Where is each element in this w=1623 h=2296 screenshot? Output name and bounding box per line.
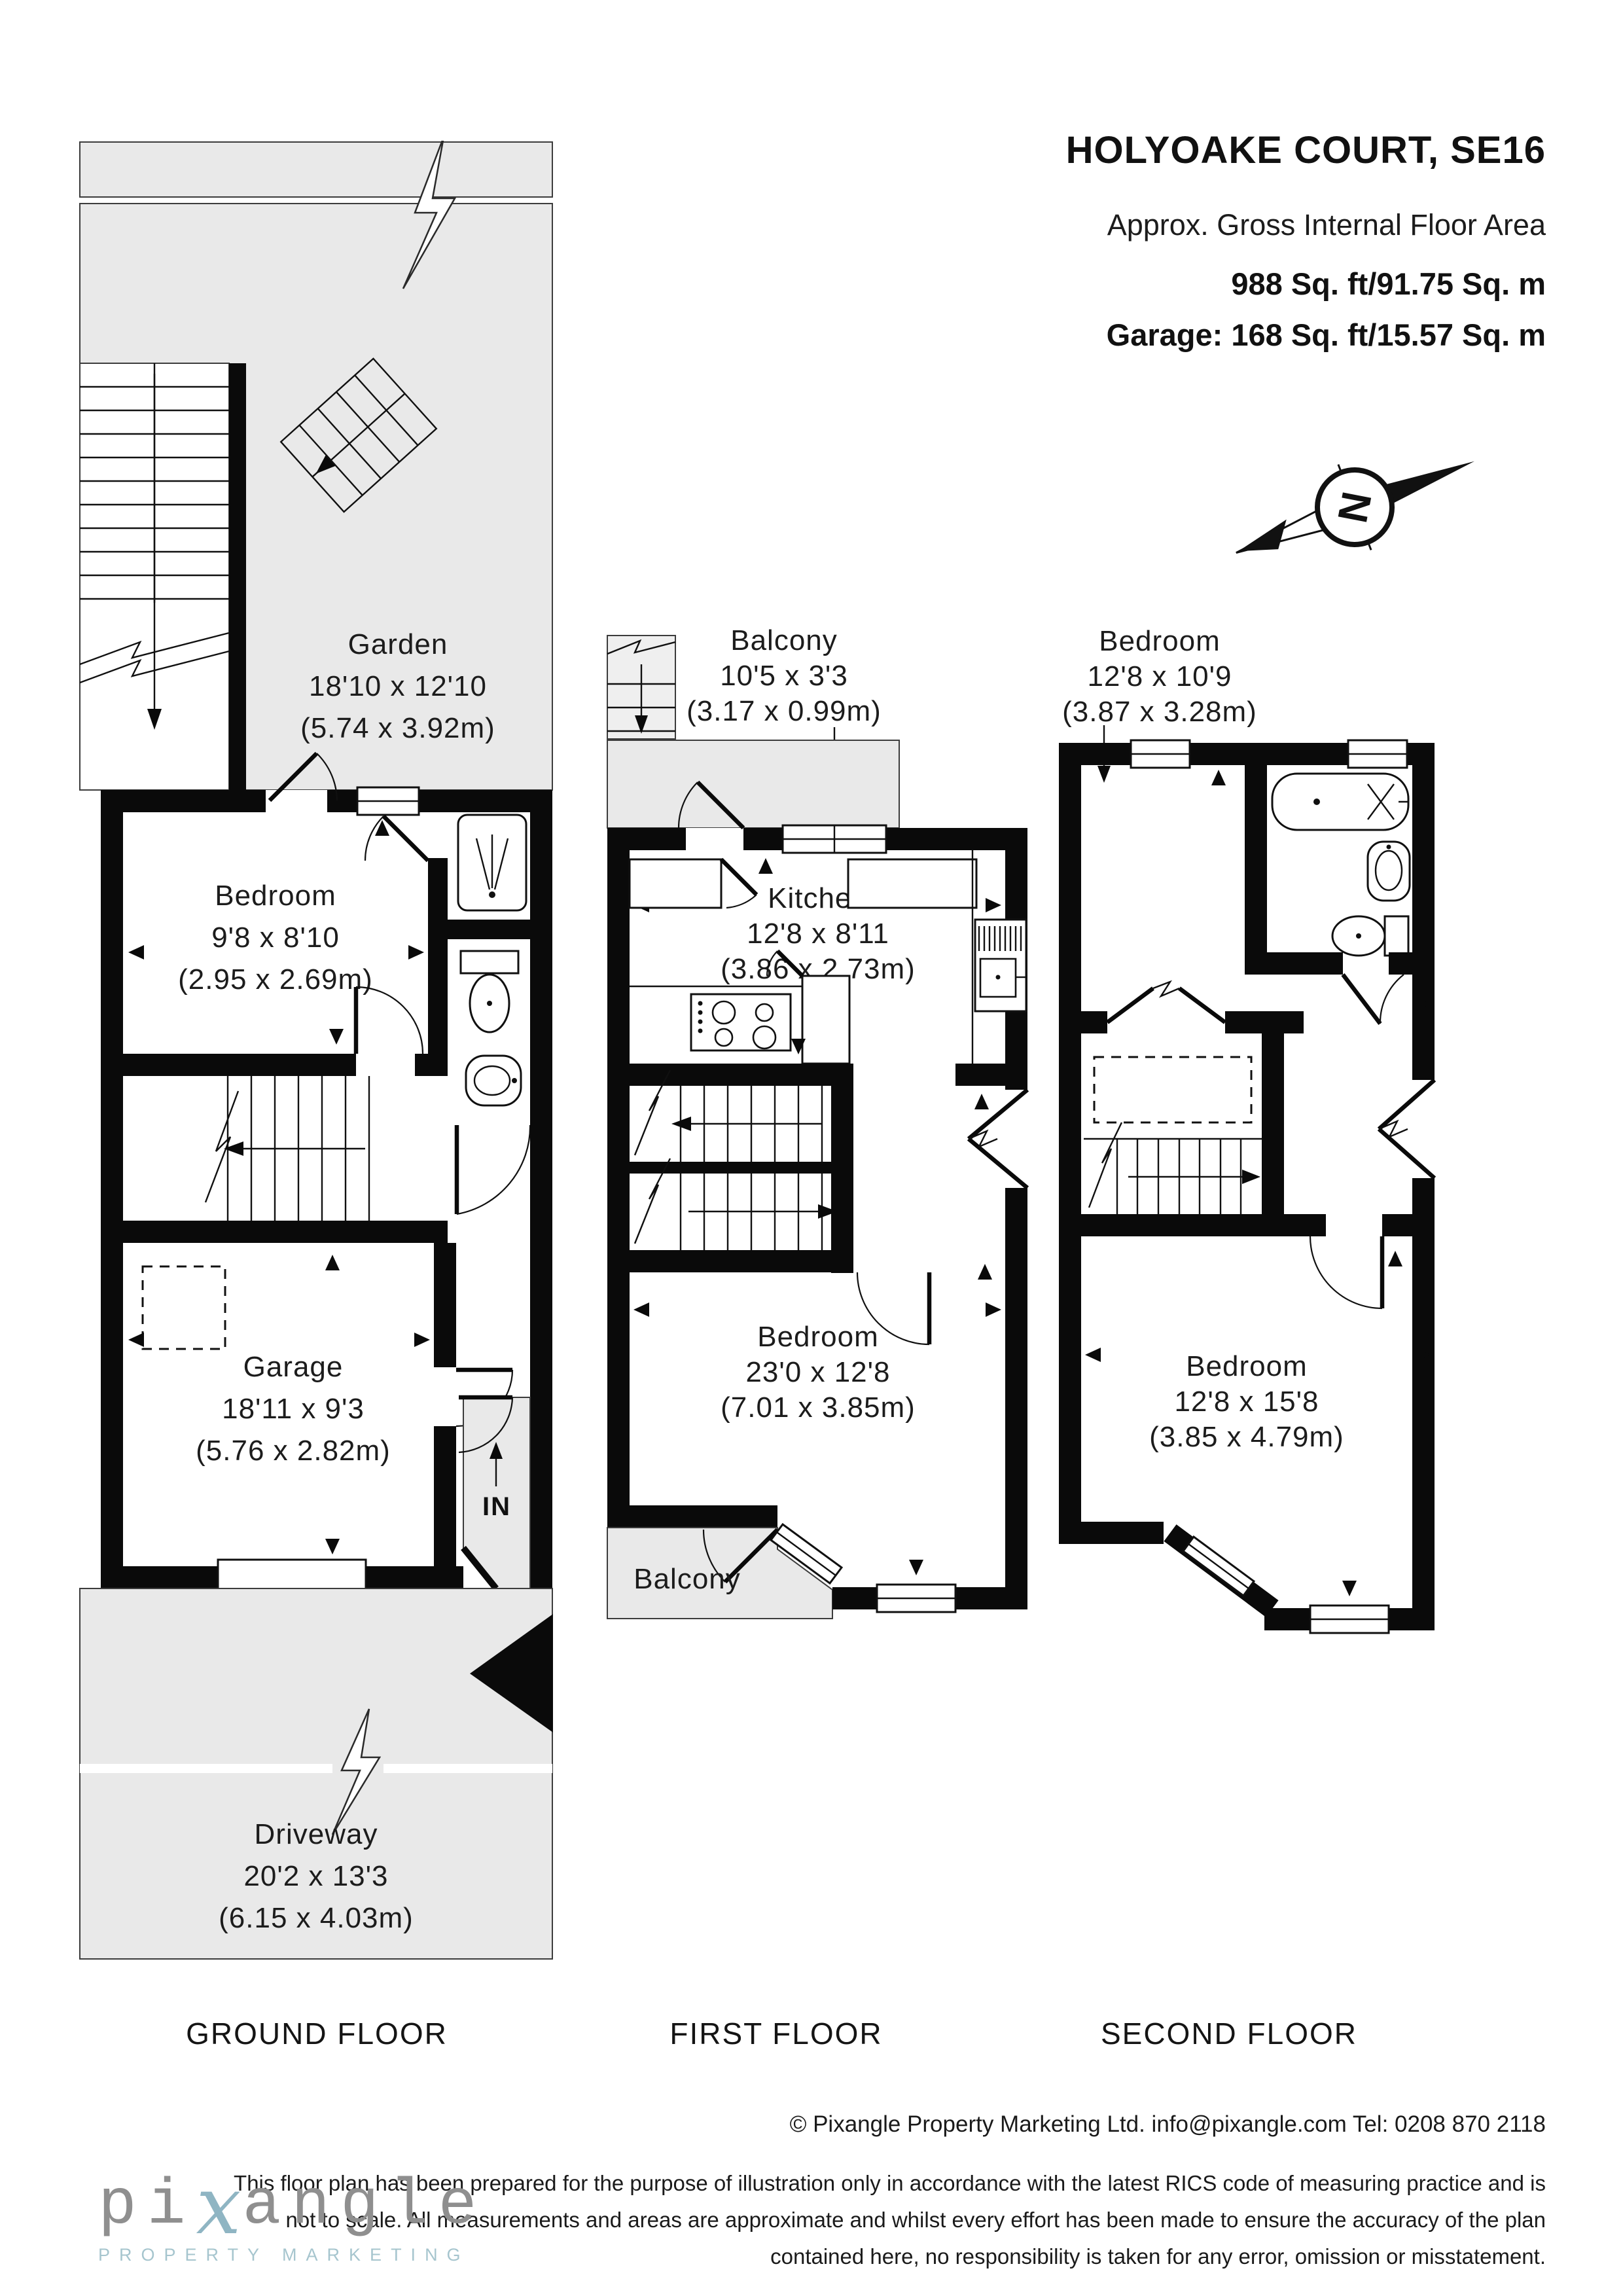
second-bedroom-top-label: Bedroom 12'8 x 10'9 (3.87 x 3.28m) xyxy=(1062,625,1257,728)
door-gap xyxy=(686,828,743,850)
kitchen-peninsula xyxy=(802,976,849,1064)
garden-name: Garden xyxy=(348,628,448,660)
second-floor-caption: SECOND FLOOR xyxy=(1101,2016,1357,2051)
svg-text:(3.17 x 0.99m): (3.17 x 0.99m) xyxy=(687,695,882,727)
wall xyxy=(955,1064,1027,1086)
wall xyxy=(1245,765,1267,952)
arrow-marker xyxy=(758,858,773,874)
page-title: HOLYOAKE COURT, SE16 xyxy=(1066,128,1546,172)
wall xyxy=(1059,1011,1107,1033)
void-dashed xyxy=(1094,1057,1251,1122)
arrow-marker xyxy=(986,898,1001,912)
arrow-marker xyxy=(986,1302,1001,1317)
arrow-marker xyxy=(325,1255,340,1270)
wall xyxy=(607,828,630,1535)
wall xyxy=(101,1221,448,1243)
svg-text:10'5 x 3'3: 10'5 x 3'3 xyxy=(720,660,848,692)
compass-needle-tip xyxy=(1383,452,1478,505)
balcony-staircase xyxy=(607,636,675,739)
logo-tagline: PROPERTY MARKETING xyxy=(98,2245,488,2265)
wall xyxy=(1059,1522,1164,1544)
wall xyxy=(415,1054,448,1076)
svg-text:(7.01 x 3.85m): (7.01 x 3.85m) xyxy=(721,1391,916,1424)
svg-text:20'2 x 13'3: 20'2 x 13'3 xyxy=(243,1860,388,1892)
toilet-icon xyxy=(1332,916,1408,956)
svg-text:(3.85 x 4.79m): (3.85 x 4.79m) xyxy=(1149,1421,1344,1453)
wall xyxy=(831,1064,853,1273)
arrow-marker xyxy=(408,945,424,960)
entrance-in-label: IN xyxy=(482,1492,511,1521)
wall xyxy=(530,790,552,1588)
ground-floor-plan: Garden 18'10 x 12'10 (5.74 x 3.92m) Bedr… xyxy=(77,141,562,1967)
arrow-marker xyxy=(128,945,144,960)
svg-text:23'0 x 12'8: 23'0 x 12'8 xyxy=(745,1356,890,1388)
arrow-marker xyxy=(909,1560,923,1575)
svg-text:(3.87 x 3.28m): (3.87 x 3.28m) xyxy=(1062,696,1257,728)
wall xyxy=(1245,952,1343,975)
wall xyxy=(1412,743,1435,1630)
arrow-marker xyxy=(1388,1251,1402,1266)
door-arc xyxy=(457,1125,530,1214)
wall xyxy=(1262,1033,1284,1214)
svg-text:Garage: Garage xyxy=(243,1351,344,1383)
wall xyxy=(434,1243,456,1367)
shower-room-door xyxy=(383,816,428,861)
garage-storage-dashed xyxy=(143,1266,225,1349)
wardrobe-doors xyxy=(1107,982,1225,1022)
ground-floor-caption: GROUND FLOOR xyxy=(186,2016,448,2051)
bedroom-window xyxy=(1131,740,1190,768)
wall xyxy=(434,1426,456,1588)
svg-text:Balcony: Balcony xyxy=(730,624,838,656)
svg-text:(5.76 x 2.82m): (5.76 x 2.82m) xyxy=(196,1435,391,1467)
page-subtitle: Approx. Gross Internal Floor Area xyxy=(1107,208,1546,242)
arrow-marker xyxy=(1085,1348,1101,1362)
first-floor-caption: FIRST FLOOR xyxy=(669,2016,882,2051)
wall xyxy=(1059,1214,1326,1236)
angled-window xyxy=(1183,1537,1254,1596)
landing-french-window xyxy=(1379,1080,1435,1178)
garden-staircase xyxy=(80,363,246,790)
compass-north-icon: N xyxy=(1224,422,1486,592)
balcony-top-area xyxy=(607,740,899,828)
arrow-marker xyxy=(974,1094,989,1109)
kitchen-counter xyxy=(630,859,721,908)
first-floor-plan: Balcony 10'5 x 3'3 (3.17 x 0.99m) Kitche… xyxy=(602,612,1031,1640)
shower-icon xyxy=(458,815,526,910)
svg-text:12'8 x 8'11: 12'8 x 8'11 xyxy=(747,918,889,950)
svg-text:Bedroom: Bedroom xyxy=(1186,1350,1308,1382)
garden-dim-metric: (5.74 x 3.92m) xyxy=(300,712,495,744)
first-bedroom-label: Bedroom 23'0 x 12'8 (7.01 x 3.85m) xyxy=(721,1321,916,1424)
garage-area-text: Garage: 168 Sq. ft/15.57 Sq. m xyxy=(1107,317,1546,353)
wall xyxy=(1382,1214,1435,1236)
toilet-icon xyxy=(461,951,518,1032)
door-arc xyxy=(1380,975,1404,1024)
arrow-marker xyxy=(1097,766,1111,783)
bedroom-window xyxy=(357,787,419,815)
wall xyxy=(1389,952,1435,975)
arrow-marker xyxy=(325,1539,340,1554)
hob-icon xyxy=(691,994,791,1050)
garden-far-area xyxy=(80,142,552,197)
balcony-top-label: Balcony 10'5 x 3'3 (3.17 x 0.99m) xyxy=(687,624,882,727)
total-area-text: 988 Sq. ft/91.75 Sq. m xyxy=(1231,266,1546,302)
svg-text:Bedroom: Bedroom xyxy=(757,1321,879,1353)
copyright-line: © Pixangle Property Marketing Ltd. info@… xyxy=(790,2111,1546,2138)
door-arc xyxy=(356,987,423,1054)
bathroom-door xyxy=(1343,975,1380,1024)
pixangle-logo: pixangle PROPERTY MARKETING xyxy=(98,2174,488,2265)
svg-text:18'11 x 9'3: 18'11 x 9'3 xyxy=(222,1393,365,1425)
stairs-down xyxy=(1084,1122,1262,1214)
bedroom-window xyxy=(877,1585,955,1612)
wall xyxy=(607,1250,853,1272)
wall xyxy=(101,1054,356,1076)
floorplan-page: HOLYOAKE COURT, SE16 Approx. Gross Inter… xyxy=(0,0,1623,2296)
logo-part-1: pi xyxy=(98,2174,196,2238)
logo-wordmark: pixangle xyxy=(98,2174,488,2238)
svg-text:Bedroom: Bedroom xyxy=(1099,625,1221,657)
bath-icon xyxy=(1272,774,1408,830)
garden-dim-imperial: 18'10 x 12'10 xyxy=(309,670,487,702)
sink-icon xyxy=(466,1056,521,1105)
second-bedroom-bottom-label: Bedroom 12'8 x 15'8 (3.85 x 4.79m) xyxy=(1149,1350,1344,1453)
wall xyxy=(428,858,448,1076)
door-arc xyxy=(1310,1236,1382,1308)
ground-bedroom-label: Bedroom 9'8 x 8'10 (2.95 x 2.69m) xyxy=(178,880,373,996)
garage-label: Garage 18'11 x 9'3 (5.76 x 2.82m) xyxy=(196,1351,391,1467)
driveway-break-gap xyxy=(383,1764,552,1773)
svg-text:Bedroom: Bedroom xyxy=(215,880,336,912)
wall xyxy=(1225,1011,1304,1033)
wall xyxy=(448,920,552,939)
kitchen-window xyxy=(783,825,886,853)
second-floor-plan: Bedroom 12'8 x 10'9 (3.87 x 3.28m) xyxy=(1055,622,1448,1649)
stair-landing-wall xyxy=(630,1162,831,1174)
arrow-marker xyxy=(1211,770,1226,785)
svg-text:12'8 x 10'9: 12'8 x 10'9 xyxy=(1087,660,1232,692)
svg-text:(6.15 x 4.03m): (6.15 x 4.03m) xyxy=(219,1902,414,1934)
svg-text:12'8 x 15'8: 12'8 x 15'8 xyxy=(1174,1386,1319,1418)
wall xyxy=(1059,743,1081,1522)
internal-staircase xyxy=(205,1076,369,1221)
kitchen-counter xyxy=(848,859,976,908)
svg-text:(2.95 x 2.69m): (2.95 x 2.69m) xyxy=(178,963,373,996)
arrow-marker xyxy=(128,1333,144,1347)
kitchen-sink-icon xyxy=(975,920,1026,1011)
svg-text:Driveway: Driveway xyxy=(255,1818,378,1850)
bathroom-window xyxy=(1348,740,1407,768)
wall xyxy=(101,790,123,1588)
balcony-bottom-label: Balcony xyxy=(633,1563,741,1595)
logo-x-glyph: x xyxy=(196,2174,241,2238)
arrow-marker xyxy=(1342,1581,1357,1596)
sink-icon xyxy=(1368,842,1410,901)
arrow-marker xyxy=(329,1029,344,1045)
door-arc xyxy=(726,895,757,908)
driveway-break-gap xyxy=(80,1764,332,1773)
bedroom-window xyxy=(1310,1605,1389,1633)
arrow-marker xyxy=(414,1333,430,1347)
door-arc xyxy=(365,816,383,861)
svg-text:9'8 x 8'10: 9'8 x 8'10 xyxy=(211,922,340,954)
wall xyxy=(607,1505,777,1528)
cupboard-door xyxy=(721,859,757,895)
compass-needle: N xyxy=(1224,422,1486,592)
arrow-marker xyxy=(978,1264,992,1280)
logo-part-2: angle xyxy=(242,2174,487,2238)
wall xyxy=(607,1064,849,1086)
arrow-marker xyxy=(633,1302,649,1317)
